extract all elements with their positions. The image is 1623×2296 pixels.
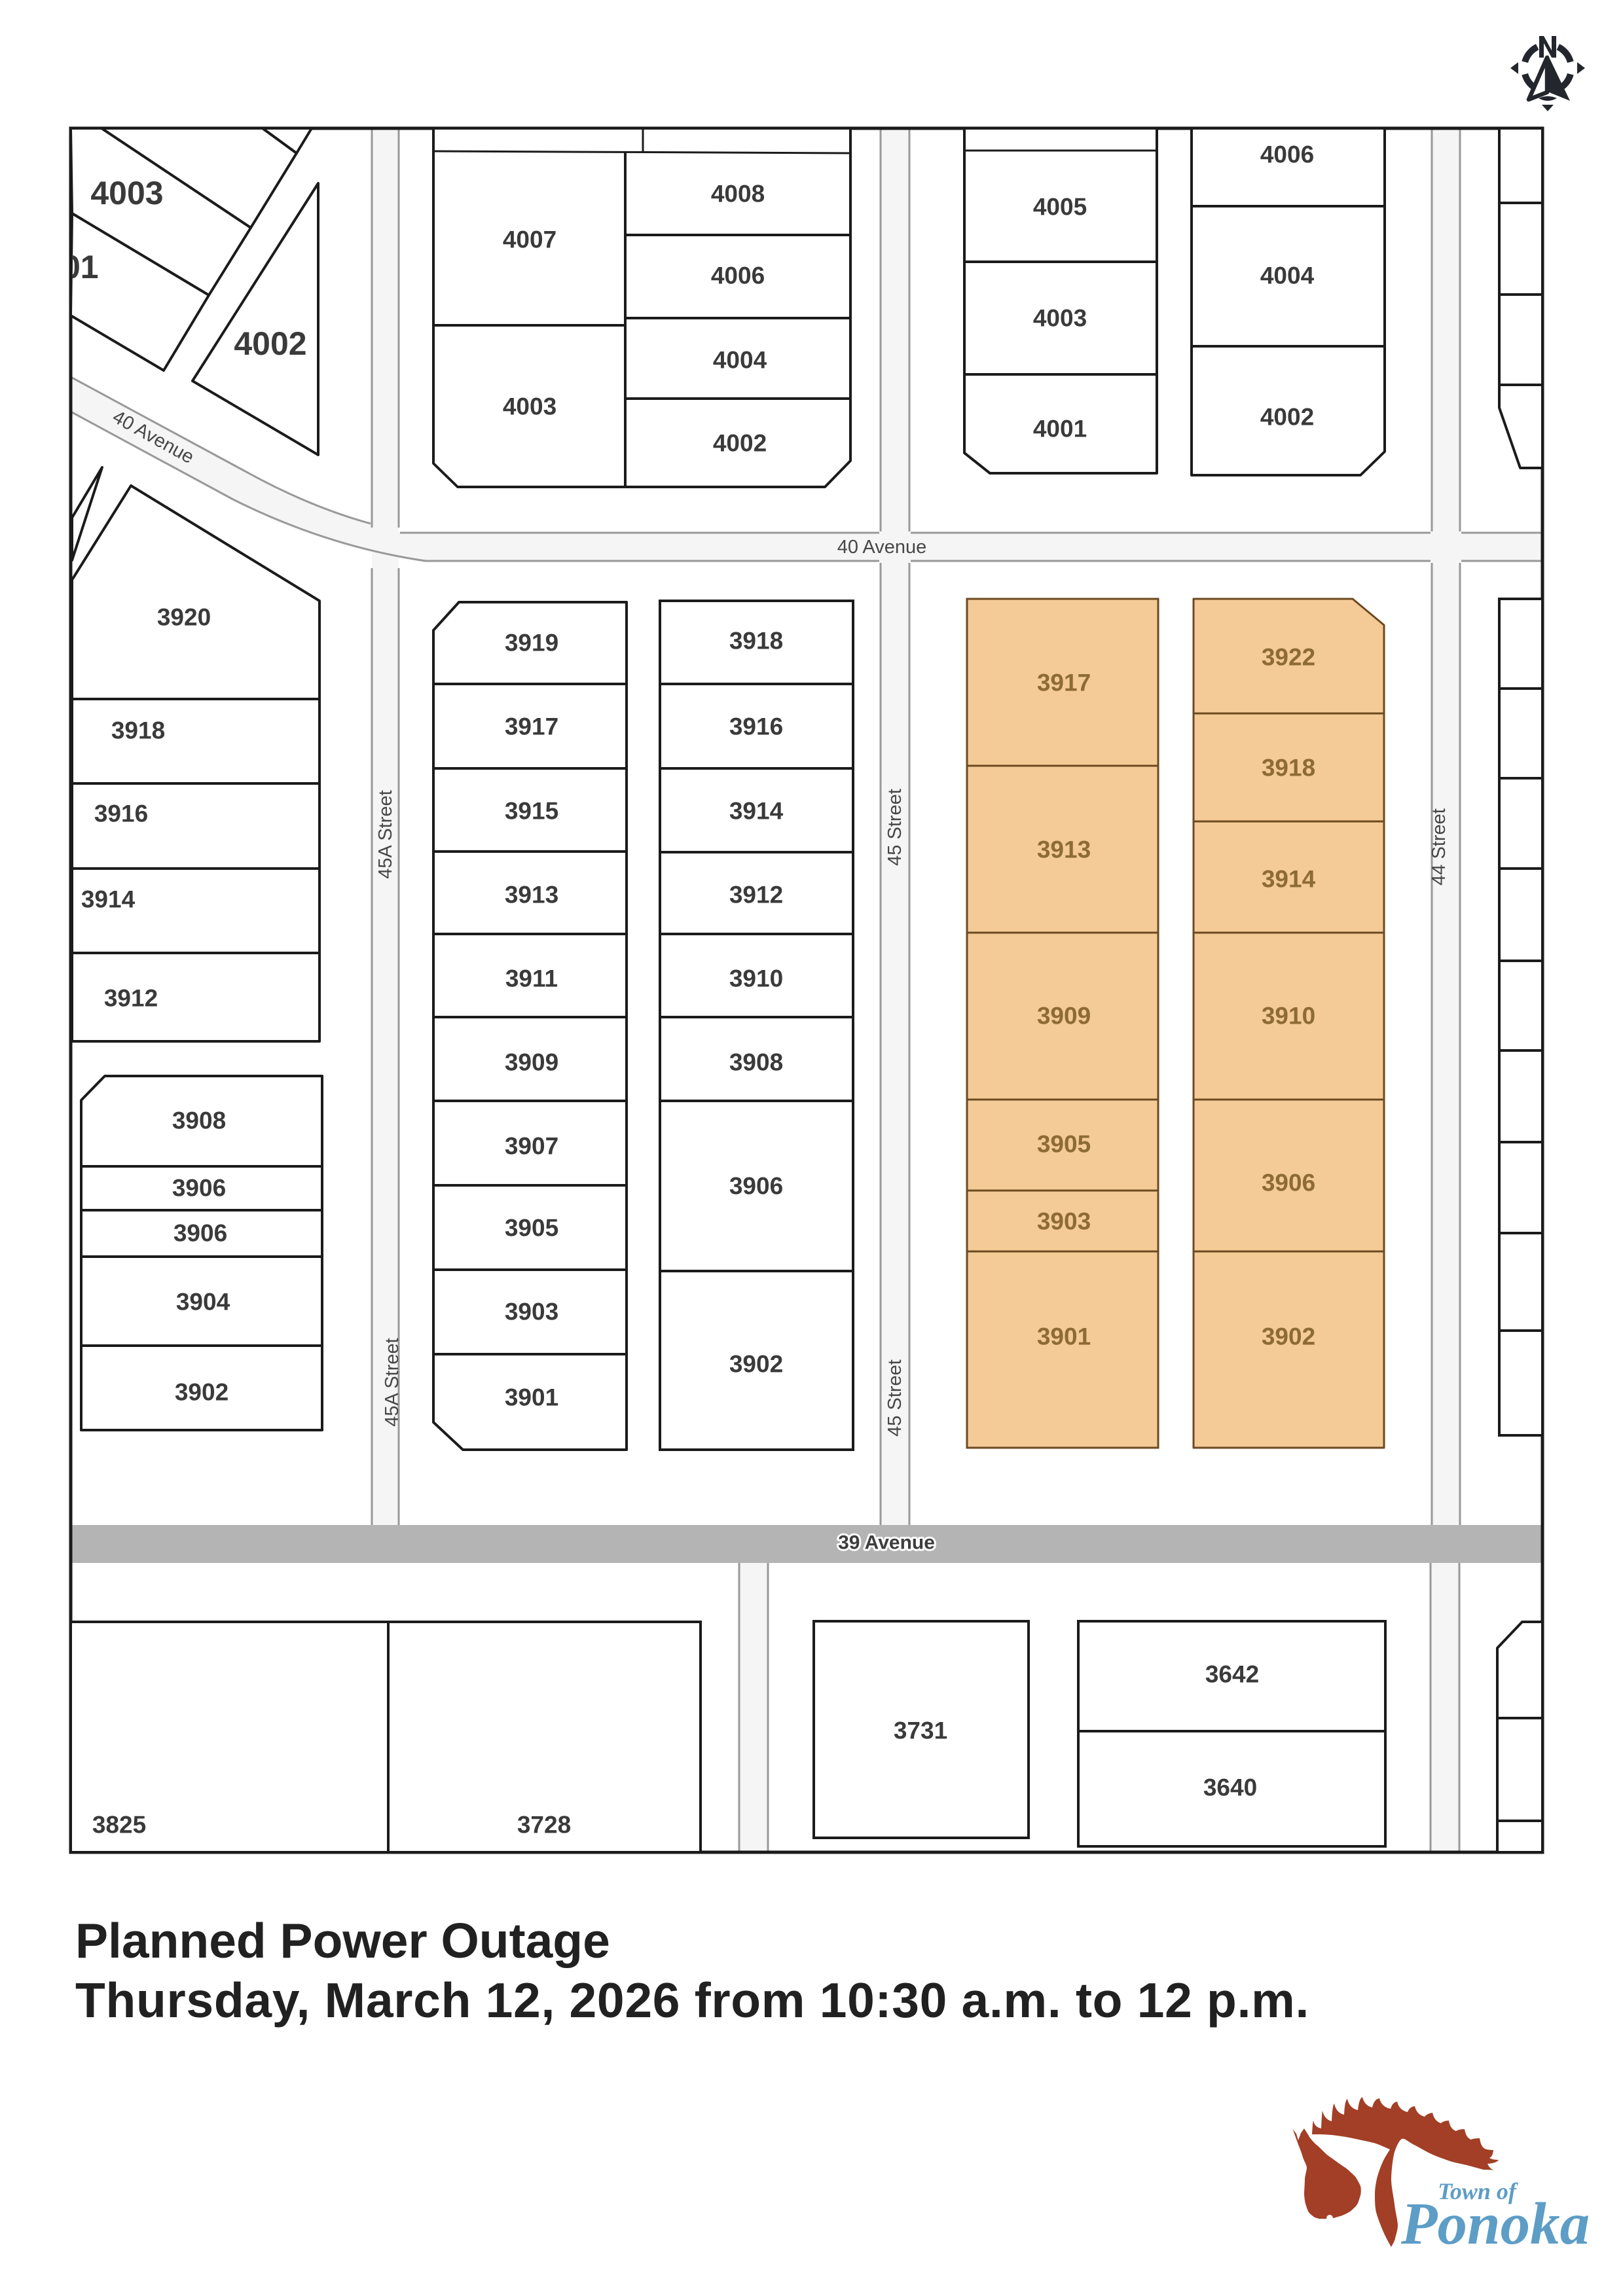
svg-text:4002: 4002 (234, 325, 306, 362)
svg-text:45 Street: 45 Street (884, 789, 905, 866)
svg-text:3901: 3901 (505, 1384, 558, 1411)
svg-text:45 Street: 45 Street (884, 1359, 905, 1437)
svg-text:45A Street: 45A Street (382, 1338, 403, 1426)
svg-text:Thursday, March 12, 2026 from: Thursday, March 12, 2026 from 10:30 a.m.… (75, 1973, 1309, 2028)
svg-text:4003: 4003 (90, 175, 163, 211)
svg-text:3912: 3912 (104, 985, 158, 1012)
svg-text:3919: 3919 (505, 630, 558, 656)
svg-text:3918: 3918 (111, 717, 165, 744)
svg-text:3905: 3905 (1037, 1131, 1091, 1158)
svg-text:3909: 3909 (1037, 1003, 1091, 1030)
svg-text:3910: 3910 (1262, 1003, 1315, 1030)
svg-text:3913: 3913 (1037, 836, 1091, 863)
svg-text:3918: 3918 (1262, 755, 1315, 781)
svg-text:3922: 3922 (1262, 644, 1315, 671)
svg-text:4002: 4002 (1260, 404, 1314, 431)
svg-text:3914: 3914 (81, 886, 136, 913)
svg-text:3920: 3920 (157, 604, 211, 631)
svg-text:3907: 3907 (505, 1133, 558, 1160)
svg-text:3901: 3901 (1037, 1323, 1091, 1350)
svg-text:3904: 3904 (176, 1289, 230, 1316)
svg-text:3914: 3914 (729, 798, 784, 825)
svg-text:40 Avenue: 40 Avenue (837, 537, 927, 558)
svg-text:3911: 3911 (505, 965, 558, 992)
svg-text:4003: 4003 (503, 393, 556, 420)
svg-text:3902: 3902 (729, 1351, 783, 1378)
svg-text:3918: 3918 (729, 628, 783, 655)
svg-text:4003: 4003 (1033, 305, 1087, 332)
svg-text:3902: 3902 (175, 1379, 228, 1406)
svg-text:3906: 3906 (729, 1173, 783, 1200)
svg-text:3642: 3642 (1205, 1661, 1259, 1688)
svg-text:39 Avenue: 39 Avenue (838, 1532, 935, 1554)
svg-text:4005: 4005 (1033, 194, 1087, 221)
svg-text:3825: 3825 (92, 1812, 146, 1839)
svg-text:3908: 3908 (172, 1107, 226, 1134)
svg-text:Planned Power Outage: Planned Power Outage (75, 1913, 610, 1968)
svg-text:3910: 3910 (729, 965, 783, 992)
svg-text:3906: 3906 (173, 1220, 227, 1247)
svg-text:3914: 3914 (1262, 866, 1316, 893)
svg-text:45A Street: 45A Street (375, 790, 396, 878)
svg-text:3916: 3916 (729, 713, 783, 740)
svg-text:44 Street: 44 Street (1429, 808, 1450, 886)
svg-text:4006: 4006 (711, 262, 765, 289)
svg-text:3728: 3728 (517, 1812, 571, 1839)
svg-text:3906: 3906 (172, 1175, 226, 1202)
svg-text:4004: 4004 (1260, 262, 1315, 289)
svg-text:3903: 3903 (505, 1299, 558, 1325)
svg-text:4002: 4002 (713, 430, 767, 457)
svg-text:3902: 3902 (1262, 1323, 1315, 1350)
svg-text:3640: 3640 (1203, 1774, 1257, 1801)
svg-text:3916: 3916 (94, 800, 148, 827)
svg-text:3905: 3905 (505, 1215, 558, 1242)
svg-text:4006: 4006 (1260, 141, 1314, 168)
svg-text:3903: 3903 (1037, 1208, 1091, 1235)
svg-text:3917: 3917 (1037, 670, 1091, 696)
svg-text:3913: 3913 (505, 882, 558, 908)
svg-text:4004: 4004 (713, 347, 767, 374)
svg-text:4001: 4001 (1033, 416, 1087, 442)
svg-text:4007: 4007 (503, 226, 556, 253)
svg-text:3731: 3731 (894, 1717, 947, 1744)
svg-text:3917: 3917 (505, 713, 558, 740)
svg-text:3908: 3908 (729, 1049, 783, 1076)
svg-text:Ponoka: Ponoka (1400, 2191, 1590, 2257)
svg-text:3906: 3906 (1262, 1170, 1315, 1196)
svg-text:4008: 4008 (711, 181, 765, 207)
svg-text:3915: 3915 (505, 798, 558, 825)
svg-text:3912: 3912 (729, 882, 783, 908)
svg-text:3909: 3909 (505, 1049, 558, 1076)
